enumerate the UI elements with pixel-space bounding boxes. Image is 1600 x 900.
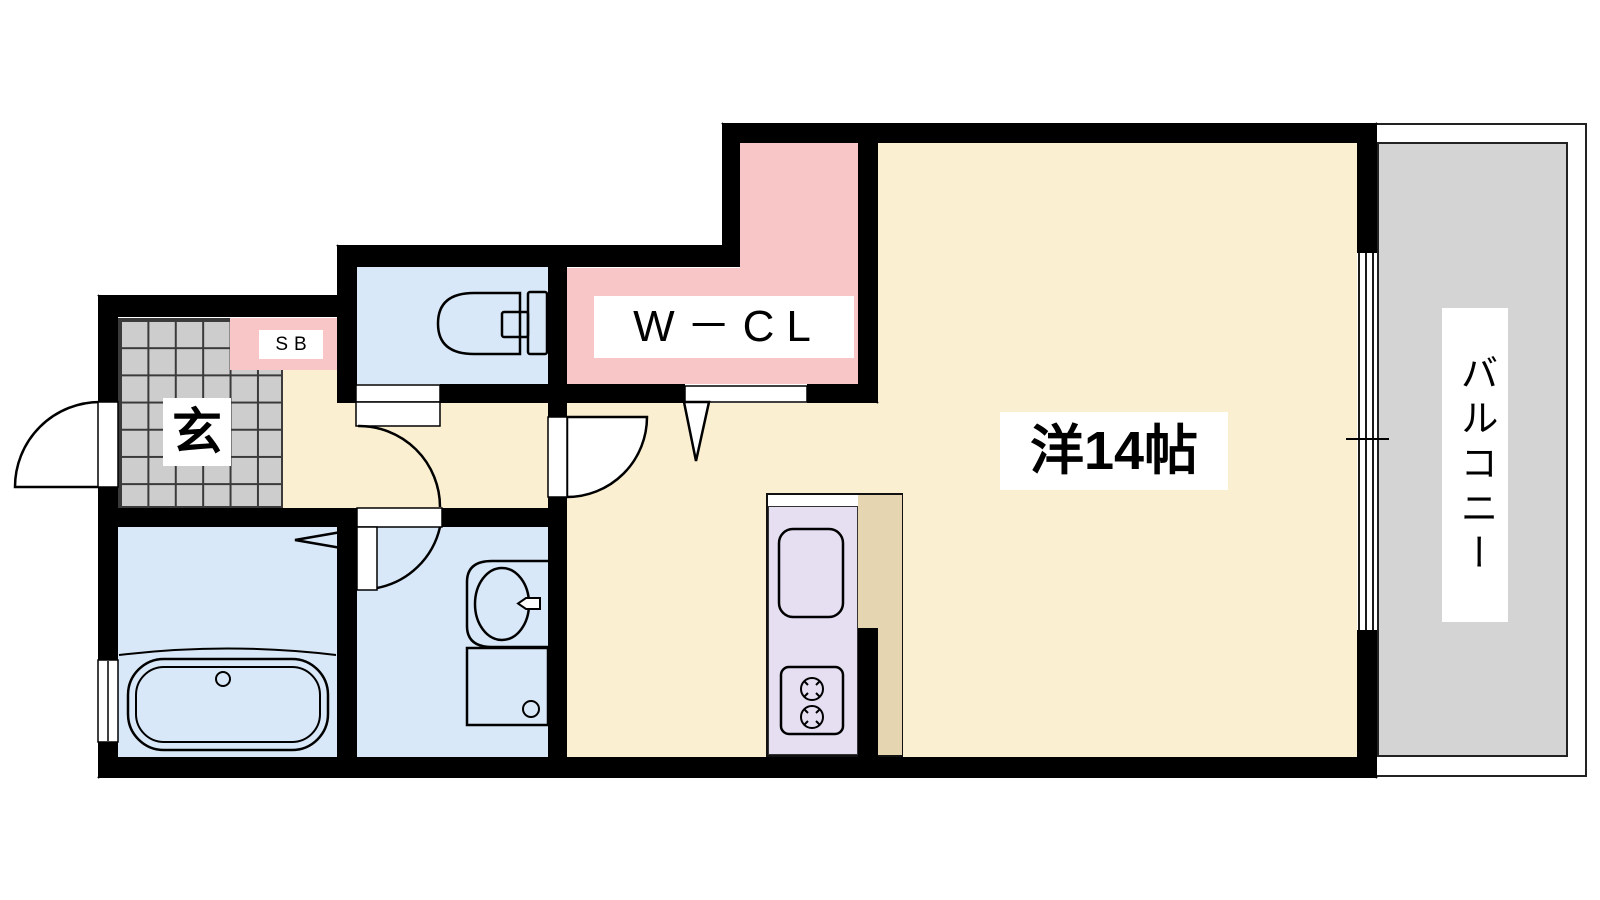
shoe-box-label-text: SB [275, 335, 312, 354]
balcony-label: バルコニー [1442, 308, 1508, 622]
washroom-door [357, 508, 442, 590]
washbasin-icon [467, 561, 548, 647]
shoe-box-label: SB [259, 330, 323, 359]
stove-icon [781, 667, 843, 734]
floor-plan: 玄 SB W－CL 洋14帖 バルコニー [0, 0, 1600, 900]
western-room-label-text: 洋14帖 [1030, 424, 1198, 478]
entrance-label-text: 玄 [172, 407, 222, 457]
balcony-label-text: バルコニー [1456, 353, 1494, 578]
balcony-window [1346, 253, 1389, 630]
closet-door [684, 386, 807, 461]
washing-machine-icon [467, 648, 548, 725]
bathtub-icon [119, 649, 336, 751]
toilet-door [356, 385, 440, 507]
bathroom-folding-door [295, 531, 347, 549]
walk-in-closet-label: W－CL [594, 296, 854, 358]
kitchen-sink-icon [779, 529, 843, 617]
toilet-icon [438, 292, 547, 354]
hallway-door [548, 417, 647, 497]
walk-in-closet-label-text: W－CL [633, 305, 823, 349]
bathroom-window [98, 660, 118, 742]
western-room-label: 洋14帖 [1000, 412, 1228, 490]
fixtures-overlay [0, 0, 1600, 900]
entrance-door [15, 402, 118, 487]
entrance-label: 玄 [163, 398, 231, 466]
